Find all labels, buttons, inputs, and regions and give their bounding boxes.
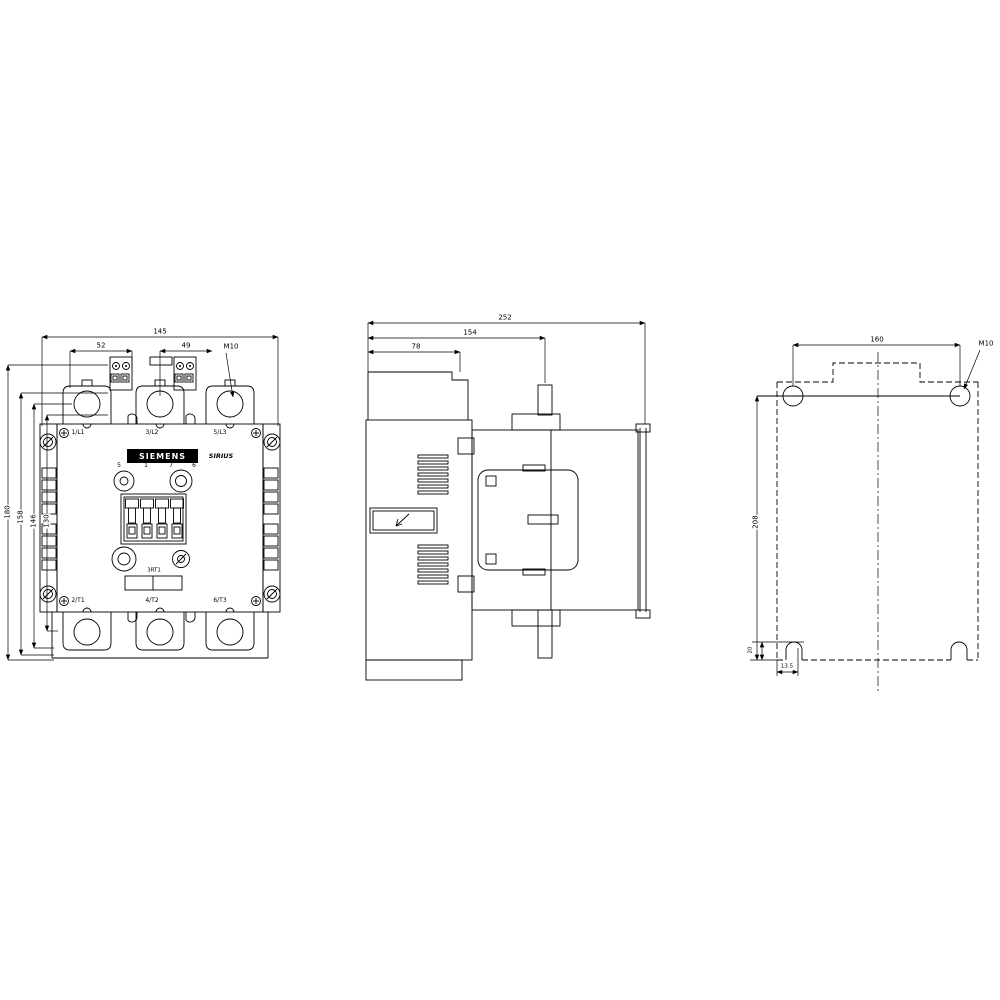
rear-dim-slot-offset: 13.5 [780, 664, 794, 670]
brand-nameplate: SIEMENS [127, 449, 198, 463]
side-dim-mid-depth: 154 [462, 330, 477, 337]
series-label: SIRIUS [209, 452, 233, 460]
front-dim-total-width: 145 [152, 329, 167, 336]
rear-dim-slot-height: 20 [748, 646, 754, 655]
side-dim-front-depth: 78 [411, 344, 422, 351]
front-terminal-screw-callout: M10 [223, 344, 240, 351]
type-code-label: 3RT1 [146, 568, 162, 574]
front-dim-right-spacing: 49 [181, 343, 192, 350]
terminal-label-3L2: 3/L2 [145, 430, 160, 436]
front-view-dimension-lines [8, 337, 278, 660]
front-dim-left-spacing: 52 [96, 343, 107, 350]
drawing-linework [0, 0, 1000, 1000]
coil-terminal-number-4: 6 [191, 463, 197, 469]
coil-terminal-number-2: 1 [143, 463, 149, 469]
terminal-label-4T2: 4/T2 [144, 598, 159, 604]
coil-terminal-number-1: 5 [116, 463, 122, 469]
position-indicator-window [370, 508, 437, 533]
terminal-label-5L3: 5/L3 [213, 430, 228, 436]
terminal-label-2T1: 2/T1 [70, 598, 85, 604]
rear-view-dimension-lines [750, 345, 980, 676]
dimension-drawing-canvas: 145 52 49 M10 180 158 146 130 1/L1 3/L2 … [0, 0, 1000, 1000]
rear-dim-hole-spacing-height: 208 [753, 514, 760, 529]
front-dim-height-1: 180 [5, 504, 12, 519]
rear-mounting-screw-callout: M10 [978, 341, 995, 348]
front-dim-height-2: 158 [18, 509, 25, 524]
front-dim-height-3: 146 [31, 513, 38, 528]
vent-slats [418, 455, 448, 584]
front-view-body [40, 357, 280, 658]
rear-view-outline [757, 352, 978, 692]
terminal-label-1L1: 1/L1 [71, 430, 86, 436]
rear-dim-hole-spacing-width: 160 [869, 337, 884, 344]
side-view-body [366, 372, 650, 680]
side-view-dimension-lines [368, 323, 645, 424]
front-dim-height-4: 130 [44, 513, 51, 528]
terminal-label-6T3: 6/T3 [212, 598, 227, 604]
coil-connector-terminals [126, 499, 184, 538]
coil-terminal-number-3: 7 [168, 463, 174, 469]
side-dim-total-depth: 252 [497, 315, 512, 322]
aux-contact-stacks [42, 468, 278, 570]
